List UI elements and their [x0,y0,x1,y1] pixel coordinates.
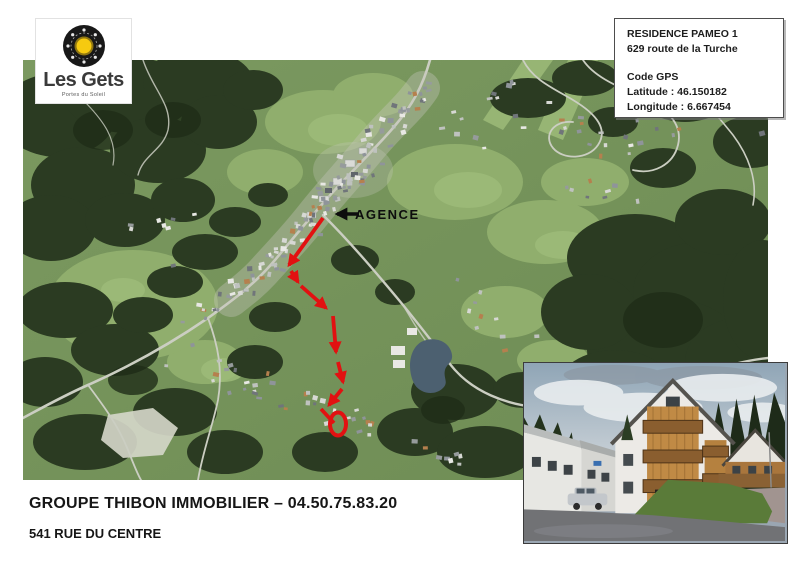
map-house [320,183,325,186]
map-house [423,446,428,449]
map-house [244,289,249,292]
map-house [423,86,427,89]
map-house [354,175,360,180]
map-house [635,119,638,123]
map-house [282,238,288,243]
map-house [506,83,513,89]
les-gets-logo: Les Gets Portes du Soleil [35,18,132,104]
map-house [218,292,222,297]
logo-tagline: Portes du Soleil [62,92,105,98]
map-house [585,196,589,199]
map-house [604,143,608,147]
map-house [369,125,373,129]
map-house [312,195,318,199]
map-house [274,267,279,271]
map-house [304,217,309,221]
map-house [318,233,323,236]
map-house [233,368,237,373]
map-house [420,100,424,103]
map-house [612,183,618,188]
map-house [363,169,368,174]
map-house [128,223,134,227]
info-latitude: Latitude : 46.150182 [627,85,777,100]
map-house [259,276,264,280]
map-house [559,118,565,121]
map-house [290,228,296,234]
map-house [358,173,363,176]
map-house [298,226,304,231]
map-house [628,152,631,155]
map-house [312,212,315,217]
map-house [284,407,288,410]
map-house [347,186,351,189]
sun-emblem-icon [61,23,107,69]
map-house [546,101,552,104]
map-house [270,255,273,258]
footer-agency-line: GROUPE THIBON IMMOBILIER – 04.50.75.83.2… [29,495,397,513]
map-house [380,163,385,166]
map-house [411,439,417,444]
map-house [274,247,278,250]
map-house [454,132,460,137]
map-house [313,402,316,405]
map-house [388,118,394,123]
map-house [250,273,254,277]
map-house [392,125,396,129]
map-house [317,191,323,197]
footer-address-line: 541 RUE DU CENTRE [29,526,161,541]
map-house [359,180,365,184]
map-house [513,114,519,119]
map-house [482,147,486,150]
map-house [415,107,421,111]
map-house [244,279,250,284]
map-house [281,254,287,257]
map-house [380,128,384,131]
map-house [346,173,351,178]
map-house [599,154,602,159]
map-house [224,368,229,372]
map-house [306,391,310,395]
map-house [323,200,327,205]
map-house [367,433,371,436]
page-root: AGENCE Les Gets Portes du Soleil RESIDEN… [0,0,800,565]
logo-name: Les Gets [43,70,123,90]
map-house [258,266,261,271]
map-house [521,126,527,129]
map-house [280,246,287,251]
map-house [269,381,276,386]
info-longitude: Longitude : 6.667454 [627,100,777,115]
map-house [580,122,584,125]
info-box: RESIDENCE PAMEO 1 629 route de la Turche… [614,18,784,118]
agence-label: AGENCE [355,207,420,222]
map-house [202,308,205,311]
map-house [347,177,353,182]
building-photo-graphic [524,363,785,541]
info-gps-heading: Code GPS [627,70,777,85]
map-house [368,423,372,427]
map-house [406,108,410,113]
map-house [402,106,406,110]
info-title: RESIDENCE PAMEO 1 [627,27,777,42]
map-house [333,195,338,200]
map-house [164,364,168,367]
map-house [325,206,330,211]
info-address: 629 route de la Turche [627,42,777,57]
map-house [578,116,584,120]
map-house [655,127,659,131]
building-photo [523,362,788,544]
map-house [181,321,185,324]
map-house [457,463,461,466]
map-house [598,131,603,134]
map-house [228,278,235,283]
info-spacer [627,57,777,70]
map-house [412,91,417,96]
map-house [363,176,367,179]
map-house [357,160,361,163]
map-house [247,266,252,271]
map-house [500,335,506,339]
map-house [367,164,371,168]
map-house [252,291,255,296]
map-house [347,181,353,185]
map-house [252,383,258,388]
map-house [373,148,377,153]
map-house [306,400,311,405]
map-house [565,186,569,190]
map-house [534,334,539,338]
